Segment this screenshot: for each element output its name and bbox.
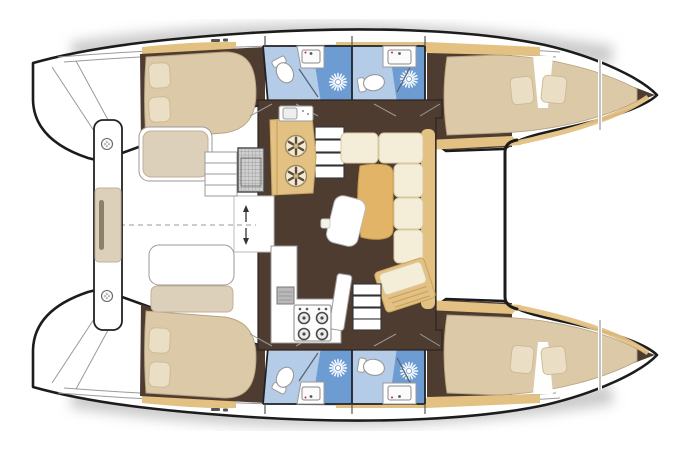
cockpit-grating [238,148,264,192]
deck-hatch-icon [102,139,113,150]
forward-beam [505,140,517,309]
appliance-grill [283,108,297,119]
table-leg [321,219,330,228]
cushion [379,133,423,163]
floorplan-canvas [0,0,676,450]
fridge-icon [286,136,307,157]
aft-beam [94,120,122,330]
fridge-icon [286,166,307,187]
stove-icon [294,305,331,341]
cockpit-bench-starboard [149,245,234,312]
cushion [394,164,423,197]
cockpit-bench-port [139,127,212,181]
cockpit-steps [205,152,237,196]
floorplan-stage [0,0,676,450]
companionway-stairs-starboard [353,284,381,330]
galley-sink [277,287,294,304]
seat-slot [99,200,104,250]
cockpit [94,120,264,330]
saloon [234,100,442,350]
companionway-stairs-port [315,127,344,178]
helm-seat [95,188,121,262]
deck-hatch-icon [102,291,113,302]
cushion [341,133,378,163]
cushion [394,198,423,229]
entry-door-opening [234,196,274,252]
